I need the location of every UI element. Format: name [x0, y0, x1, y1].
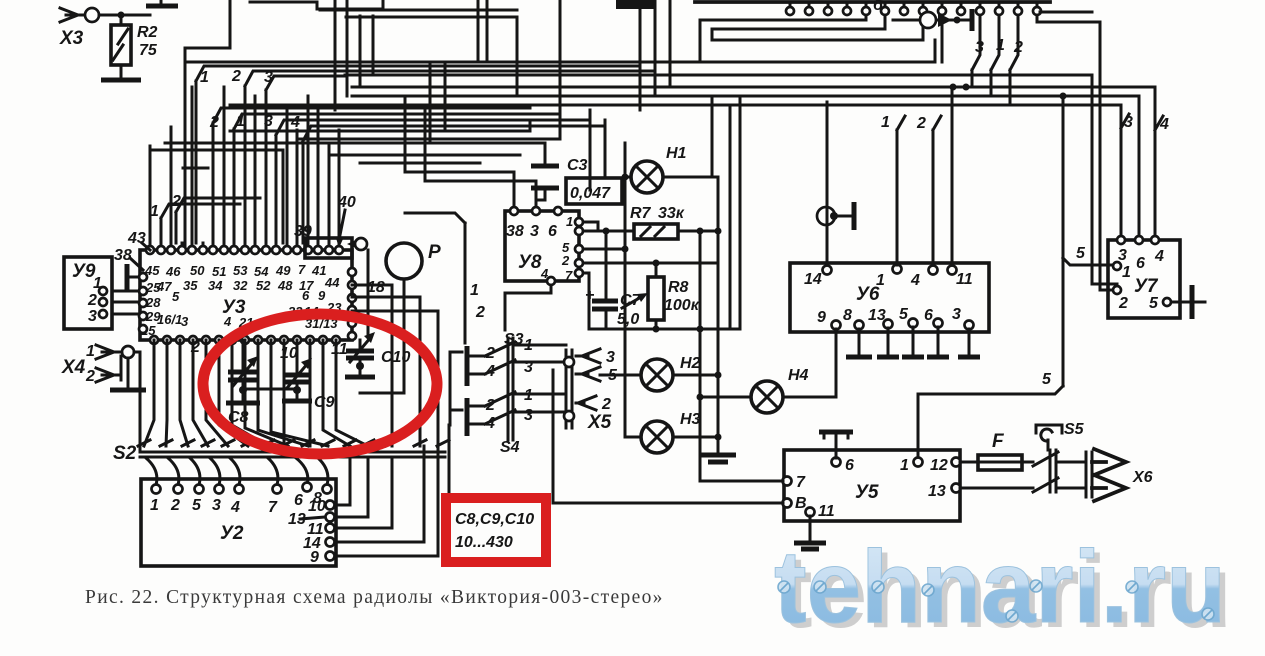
svg-text:2: 2	[231, 68, 241, 85]
svg-text:У8: У8	[518, 252, 542, 273]
svg-text:Х5: Х5	[587, 412, 612, 433]
svg-text:5,0: 5,0	[617, 311, 639, 328]
svg-text:40: 40	[337, 194, 356, 211]
svg-text:1: 1	[86, 343, 95, 360]
svg-text:9: 9	[310, 549, 319, 566]
svg-text:9: 9	[318, 288, 326, 303]
svg-text:б: б	[873, 0, 884, 14]
svg-text:Н3: Н3	[680, 411, 701, 428]
svg-text:33к: 33к	[658, 205, 685, 222]
svg-text:2: 2	[916, 115, 926, 132]
svg-text:35: 35	[183, 278, 198, 293]
svg-text:Х3: Х3	[59, 28, 84, 49]
svg-text:3: 3	[264, 69, 273, 86]
svg-text:5: 5	[608, 367, 618, 384]
svg-text:3: 3	[975, 39, 984, 56]
svg-text:5: 5	[1149, 295, 1159, 312]
svg-text:Н1: Н1	[666, 145, 687, 162]
svg-text:У7: У7	[1134, 276, 1159, 297]
svg-text:Х4: Х4	[61, 357, 86, 378]
svg-text:2: 2	[87, 292, 97, 309]
svg-text:51: 51	[212, 264, 226, 279]
svg-text:75: 75	[139, 42, 158, 59]
svg-text:5: 5	[899, 306, 909, 323]
svg-text:6: 6	[1136, 255, 1145, 272]
svg-text:2: 2	[601, 396, 611, 413]
svg-text:18: 18	[367, 279, 385, 296]
svg-text:Н2: Н2	[680, 355, 701, 372]
svg-text:53: 53	[233, 263, 248, 278]
svg-text:С3: С3	[567, 157, 588, 174]
svg-text:tehnari.ru: tehnari.ru	[774, 529, 1226, 644]
svg-text:С8,С9,С10: С8,С9,С10	[455, 511, 534, 528]
svg-text:4: 4	[290, 114, 300, 131]
svg-text:16/1: 16/1	[157, 312, 182, 327]
svg-text:4: 4	[230, 499, 240, 516]
svg-text:У6: У6	[856, 284, 880, 305]
svg-text:8: 8	[843, 307, 852, 324]
svg-text:9: 9	[817, 309, 826, 326]
svg-text:48: 48	[277, 278, 293, 293]
svg-text:44: 44	[324, 275, 340, 290]
svg-text:4: 4	[485, 363, 495, 380]
svg-text:1: 1	[524, 337, 533, 354]
svg-text:7: 7	[298, 262, 306, 277]
svg-text:3: 3	[606, 349, 615, 366]
svg-text:3: 3	[88, 308, 97, 325]
svg-text:1: 1	[881, 114, 890, 131]
svg-text:7: 7	[796, 474, 806, 491]
svg-text:С10: С10	[381, 349, 410, 366]
svg-text:6: 6	[302, 288, 310, 303]
svg-text:3: 3	[212, 497, 221, 514]
svg-text:1: 1	[200, 69, 209, 86]
svg-text:Х6: Х6	[1132, 469, 1153, 486]
svg-text:3: 3	[952, 306, 961, 323]
svg-text:0,047: 0,047	[570, 185, 611, 202]
svg-text:2: 2	[1013, 39, 1023, 56]
svg-text:3: 3	[181, 314, 189, 329]
svg-text:3: 3	[264, 113, 273, 130]
svg-text:5: 5	[1042, 371, 1052, 388]
svg-text:3: 3	[524, 407, 533, 424]
svg-text:11: 11	[818, 503, 835, 520]
svg-text:38: 38	[114, 247, 132, 264]
svg-text:10...430: 10...430	[455, 534, 513, 551]
svg-text:4: 4	[1159, 116, 1169, 133]
svg-text:У5: У5	[855, 482, 879, 503]
svg-text:2: 2	[1118, 295, 1128, 312]
svg-text:R7: R7	[630, 205, 652, 222]
svg-text:Н4: Н4	[788, 367, 809, 384]
svg-text:7: 7	[565, 268, 573, 283]
svg-text:1: 1	[524, 387, 533, 404]
svg-text:У2: У2	[220, 523, 244, 544]
svg-text:52: 52	[256, 278, 271, 293]
svg-text:100к: 100к	[664, 297, 700, 314]
svg-text:4: 4	[1154, 248, 1164, 265]
svg-text:1: 1	[470, 282, 479, 299]
svg-text:R2: R2	[137, 24, 158, 41]
svg-text:1: 1	[900, 457, 909, 474]
svg-text:54: 54	[254, 264, 269, 279]
svg-text:50: 50	[190, 263, 205, 278]
svg-text:7: 7	[268, 499, 278, 516]
svg-text:5: 5	[1076, 245, 1086, 262]
svg-text:3: 3	[1124, 114, 1133, 131]
svg-text:12: 12	[930, 457, 948, 474]
svg-text:2: 2	[190, 339, 200, 356]
svg-text:S4: S4	[500, 439, 520, 456]
svg-text:11: 11	[331, 341, 348, 358]
svg-text:11: 11	[956, 271, 973, 288]
svg-text:46: 46	[165, 264, 181, 279]
svg-text:3: 3	[530, 223, 539, 240]
svg-text:32: 32	[233, 278, 248, 293]
svg-text:2: 2	[209, 114, 219, 131]
svg-text:2: 2	[485, 397, 495, 414]
svg-text:4: 4	[223, 314, 232, 329]
svg-text:10: 10	[308, 498, 326, 515]
svg-text:6: 6	[924, 307, 933, 324]
svg-text:S5: S5	[1064, 421, 1085, 438]
svg-text:1: 1	[150, 497, 159, 514]
svg-text:R8: R8	[668, 279, 689, 296]
svg-text:14: 14	[804, 271, 822, 288]
svg-text:Р: Р	[428, 242, 441, 263]
svg-text:1: 1	[1122, 264, 1131, 281]
svg-text:1: 1	[566, 214, 573, 229]
svg-text:+: +	[585, 287, 594, 304]
svg-text:38: 38	[506, 223, 524, 240]
svg-text:Рис. 22. Структурная схема рад: Рис. 22. Структурная схема радиолы «Викт…	[85, 587, 664, 608]
svg-text:49: 49	[275, 263, 291, 278]
svg-text:6: 6	[548, 223, 557, 240]
svg-text:1: 1	[996, 37, 1005, 54]
svg-text:6: 6	[845, 457, 854, 474]
svg-text:2: 2	[485, 345, 495, 362]
svg-text:F: F	[992, 431, 1005, 452]
svg-text:13: 13	[928, 483, 946, 500]
svg-text:4: 4	[485, 415, 495, 432]
svg-text:1: 1	[236, 113, 245, 130]
svg-text:5: 5	[192, 497, 202, 514]
svg-text:13: 13	[868, 307, 886, 324]
svg-text:С9: С9	[314, 394, 335, 411]
svg-text:2: 2	[85, 368, 95, 385]
svg-text:34: 34	[208, 278, 223, 293]
svg-text:6: 6	[294, 492, 303, 509]
svg-text:3: 3	[524, 359, 533, 376]
svg-text:S2: S2	[113, 443, 137, 464]
svg-text:5: 5	[172, 289, 180, 304]
svg-text:4: 4	[910, 272, 920, 289]
svg-text:2: 2	[561, 253, 570, 268]
svg-text:10: 10	[280, 345, 298, 362]
svg-text:2: 2	[475, 304, 485, 321]
svg-text:2: 2	[170, 497, 180, 514]
